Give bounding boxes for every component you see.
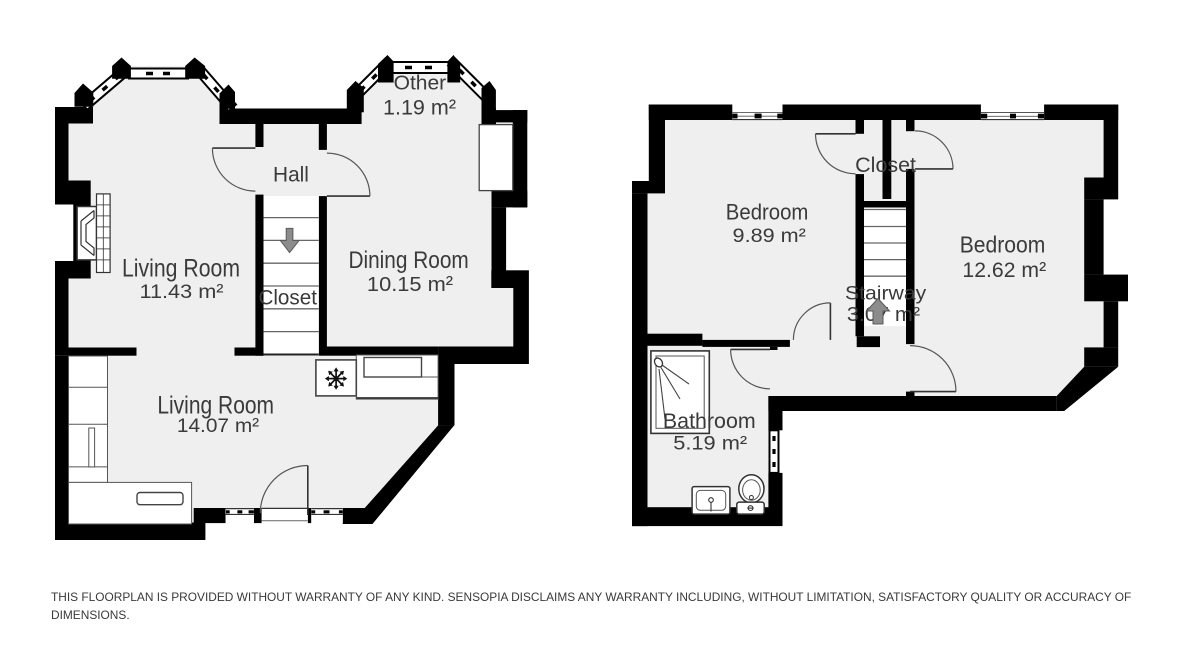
svg-text:10.15 m²: 10.15 m² xyxy=(367,273,453,296)
svg-text:Bedroom: Bedroom xyxy=(726,199,809,224)
svg-text:11.43 m²: 11.43 m² xyxy=(140,281,224,303)
svg-text:Other: Other xyxy=(394,73,447,95)
svg-text:Dining Room: Dining Room xyxy=(348,247,468,274)
svg-text:9.89 m²: 9.89 m² xyxy=(733,225,807,247)
svg-text:1.19 m²: 1.19 m² xyxy=(383,96,456,119)
svg-text:Closet: Closet xyxy=(258,285,317,309)
svg-text:Stairway: Stairway xyxy=(845,283,926,305)
svg-text:5.19 m²: 5.19 m² xyxy=(673,432,747,454)
svg-text:Hall: Hall xyxy=(273,162,309,186)
svg-text:Bathroom: Bathroom xyxy=(663,409,756,433)
svg-text:Bedroom: Bedroom xyxy=(960,232,1046,258)
svg-text:Living Room: Living Room xyxy=(122,255,240,283)
svg-text:14.07 m²: 14.07 m² xyxy=(177,415,260,437)
svg-text:Closet: Closet xyxy=(855,154,916,177)
svg-text:12.62 m²: 12.62 m² xyxy=(962,259,1046,282)
